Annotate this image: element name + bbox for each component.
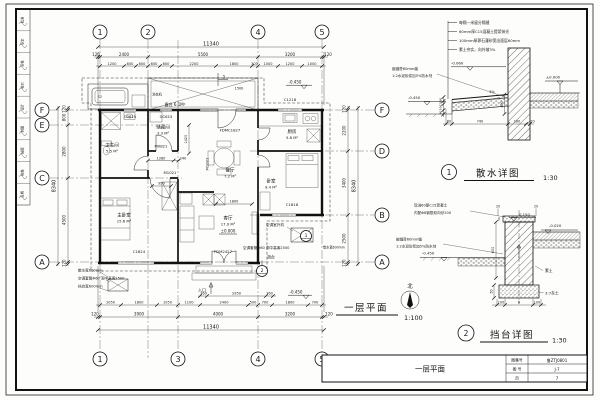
architectural-drawing: 批准审定审核校对设计制图描图校核日期 1245 1345 FECA FDBA 1… (0, 0, 600, 400)
level-mark: -0.450 (289, 80, 302, 85)
dim-left-seg: 120 (62, 105, 67, 113)
dim: 50 (497, 217, 501, 221)
grid-bubble-right: D (379, 147, 385, 156)
dim-top-minor: 1200 (286, 62, 295, 66)
detail-title: 挡台详图 (490, 329, 534, 341)
dim-top-minor: 2200 (190, 62, 199, 66)
detail-sanshui: 每隔一米留分隔缝60mm厚C15混凝土提浆抹光100mm厚卵石灌砂宽出面层60m… (392, 20, 580, 182)
dim-top-minor: 1200 (108, 62, 117, 66)
room-area: 17.0 M² (221, 222, 236, 227)
door-window-label: FDM2427 (214, 249, 233, 254)
dim-inner: 1500 (235, 87, 244, 91)
dim-top-minor: 1800 (230, 62, 239, 66)
grid-bubble-top: 5 (319, 28, 324, 37)
dim: 180 (514, 120, 520, 124)
detail-note: 100mm厚卵石灌砂宽出面层60mm (459, 38, 520, 43)
signature-cell-label: 校对 (20, 81, 25, 88)
dim-left-seg: 120 (62, 259, 67, 267)
grid-bubble-left: E (39, 121, 44, 130)
signature-cell-label: 日期 (20, 191, 25, 197)
dim: B (518, 301, 521, 305)
room-area: 3.3 M² (157, 131, 170, 136)
dim-left-seg: 4500 (62, 214, 67, 225)
terrace-label: 露台 6.1M² (165, 101, 186, 107)
grid-bubble-top: 1 (97, 28, 102, 37)
dim-bottom-minor: 700 (312, 301, 319, 305)
dim-inner: 1420 (184, 135, 188, 144)
dim-top-minor: 600 (139, 62, 146, 66)
window-label: C1824 (133, 249, 146, 254)
dim-inner: 1280 (157, 157, 166, 161)
dim-bottom-minor: 700 (262, 301, 269, 305)
plan-title: 一层平面 (344, 303, 388, 314)
room-name: 主卧室 (117, 212, 131, 219)
dim-bottom-minor: 500 (250, 301, 257, 305)
dim: 740 (477, 120, 483, 124)
grid-bubble-right: B (379, 211, 385, 220)
grid-bubble-left: F (40, 106, 45, 115)
grid-bubble-top: 2 (145, 28, 150, 37)
dim-bottom-major: 120 (325, 312, 333, 317)
detail-dangtai: 现浇60厚C15混凝土内配Φ6钢筋双向@200 2020 0.150 -0.02… (396, 203, 580, 345)
dim: 50 (490, 289, 494, 293)
grid-bubble-bottom: 4 (255, 355, 260, 364)
window-label: GC615 (160, 114, 173, 119)
dim-bottom-major: 120 (91, 312, 99, 317)
plan-note: 散水宽600mm (323, 245, 345, 250)
dim-left-seg: 2800 (62, 146, 67, 157)
dim-right-seg: 120 (342, 259, 347, 267)
grid-bubble-bottom: 1 (97, 355, 102, 364)
level-mark: -0.060 (451, 61, 464, 66)
detail-note: 每隔一米留分隔缝 (459, 20, 490, 25)
dim-top-major: 2400 (119, 52, 130, 57)
door-window-label: FDMC1827 (220, 127, 241, 132)
dim-top-minor: 600 (127, 62, 134, 66)
plan-note: 挡台 (267, 255, 275, 260)
window-label: C0615 (124, 114, 137, 119)
plan-note: 空调套管Φ60 洞中高离2500 (243, 245, 290, 250)
titleblock-atlas-no: 鲁ZTJ0801 (547, 357, 568, 363)
dim-bottom-minor: 1050 (163, 301, 172, 305)
dim: 40 (439, 111, 443, 115)
plan-room-labels: 卫生间 5.5 M² 储藏间 3.3 M² 厨房 5.8 M² 餐厅 7.2 M… (105, 92, 298, 227)
drawing-sheet: 批准审定审核校对设计制图描图校核日期 1245 1345 FECA FDBA 1… (0, 0, 600, 400)
detail-note: 60mm厚C15混凝土提浆抹光 (459, 29, 509, 34)
dim-bottom-minor: 1050 (106, 301, 115, 305)
dim-top-minor: 1000 (264, 62, 273, 66)
dim-left-seg: 800 (62, 113, 67, 121)
level-mark: -0.450 (422, 251, 435, 256)
level-mark: -0.450 (408, 95, 421, 100)
dim-bottom-total: 11340 (203, 325, 219, 331)
washer-label: 洗衣机 (152, 92, 162, 97)
signature-cell-label: 审定 (20, 38, 25, 45)
room-area: 15.6 M² (117, 219, 132, 224)
door-label: M1021 (205, 157, 210, 171)
room-area: 7.2 M² (224, 174, 237, 179)
dim-top-minor: 300 (251, 62, 258, 66)
door-label: M0821 (155, 144, 169, 149)
dim-top-minor: 600 (163, 62, 170, 66)
titleblock-page-no: 7 (556, 376, 559, 381)
layer-label: 3:7灰土 (545, 291, 559, 296)
dim-bottom-major: 4000 (213, 312, 224, 317)
entry-label: 入口 (198, 288, 206, 293)
dim-top-major: 3200 (285, 52, 296, 57)
window-label: C1818 (286, 202, 299, 207)
dim-right-seg: 2500 (342, 233, 347, 244)
dim-right-total: 8340 (352, 180, 358, 193)
detail-note: 内配Φ6钢筋双向@200 (414, 210, 452, 215)
detail-note: 1:2水泥砂浆加5%防水剂 (392, 73, 433, 78)
dim-top-major: 120 (324, 52, 332, 57)
plan-note: 挡台宽600mm (78, 283, 103, 288)
slope-label: 3% (489, 90, 495, 94)
dim: 20 (439, 101, 443, 105)
grid-bubble-left: A (39, 258, 45, 267)
grid-bubble-right: A (379, 258, 385, 267)
level-mark: ±0.000 (221, 229, 236, 234)
room-name: 卧室 (267, 178, 276, 185)
signature-cell-label: 设计 (20, 103, 25, 110)
dim-inner: 240 (180, 157, 186, 161)
signature-cell-label: 校核 (20, 169, 25, 176)
ac-outdoor-units (108, 228, 313, 291)
dim-top-major: 120 (92, 52, 100, 57)
dim-entry: 360 (266, 292, 273, 296)
titleblock-sheet-no: J-7 (553, 367, 559, 372)
dim: 400 (500, 101, 504, 107)
dim-bottom-minor: 1100 (185, 301, 194, 305)
titleblock-label: 页 (515, 376, 519, 381)
detail-number: 1 (447, 168, 452, 177)
room-name: 厨房 (288, 128, 297, 135)
dim-top-major: 5500 (198, 52, 209, 57)
dim-bottom-minor: 1800 (286, 301, 295, 305)
room-name: 客厅 (224, 215, 233, 222)
dim: 60 (439, 98, 443, 102)
detail-note: 嵌缝膏60mm缝 (396, 237, 422, 242)
north-compass: 北 (401, 282, 419, 309)
dim-right-seg: 120 (342, 105, 347, 113)
dim-right-seg: 3400 (342, 177, 347, 188)
dim-inner: 1800 (230, 200, 239, 204)
plan-scale: 1:100 (404, 314, 423, 322)
detail-note: 现浇60厚C15混凝土 (414, 203, 448, 208)
detail-number: 2 (464, 329, 469, 338)
detail-note: 嵌缝膏60mm缝 (392, 66, 418, 71)
dim: 20 (534, 204, 538, 208)
plan-title-group: 一层平面 1:100 北 (336, 282, 423, 322)
planter-sink-platform (88, 84, 148, 109)
level-mark: -0.020 (549, 223, 562, 228)
dim-left-total: 8340 (52, 180, 58, 193)
door-label: M1021 (164, 170, 178, 175)
dim-top-minor: 600 (151, 62, 158, 66)
level-mark: -0.450 (290, 290, 303, 295)
detail-scale: 1:30 (552, 337, 567, 345)
dim: 100 (534, 301, 540, 305)
grid-bubble-right: F (380, 106, 385, 115)
plan-note: 散水宽600mm (78, 267, 103, 272)
dim-bottom-minor: 2400 (220, 301, 229, 305)
window-label: C1218 (284, 97, 297, 102)
grid-bubble-bottom: 3 (175, 355, 180, 364)
dim-top-total: 11340 (203, 42, 219, 48)
section-mark: 1 (223, 75, 226, 81)
dim: 20 (496, 204, 500, 208)
titleblock-drawing-name: 一层平面 (415, 365, 445, 374)
room-name: 卫生间 (105, 142, 119, 149)
detail-note: 1:2水泥砂浆加5%防水剂 (396, 244, 437, 249)
dim-bottom-major: 3200 (285, 312, 296, 317)
dim: 60 (447, 120, 451, 124)
dim-bottom-major: 3900 (134, 312, 145, 317)
detail-ref-2: 2 (261, 268, 264, 274)
detail-title: 散水详图 (476, 168, 520, 180)
layer-label: 素土 (545, 268, 553, 273)
dim-bottom-minor: 1800 (135, 301, 144, 305)
north-label: 北 (407, 282, 413, 290)
room-area: 5.5 M² (106, 149, 119, 154)
grid-bubble-top: 4 (255, 28, 260, 37)
dining-table (208, 141, 240, 175)
grid-bubble-left: C (39, 174, 45, 183)
signature-cell-label: 描图 (20, 148, 25, 154)
signature-strip: 批准审定审核校对设计制图描图校核日期 (16, 9, 30, 205)
dim-right-seg: 2200 (342, 125, 347, 136)
dim-top-minor: 1000 (308, 62, 317, 66)
master-bed (100, 182, 177, 240)
detail-scale: 1:30 (543, 174, 558, 182)
dim: 100 (439, 105, 443, 111)
detail-ref-1: 1 (305, 233, 308, 239)
detail-note: 素土夯实，向外坡3% (459, 47, 496, 52)
level-mark: 0.150 (519, 212, 530, 217)
dim-entry: 2950 (232, 292, 241, 296)
plan-note: 空调套管Φ60 洞中高离2500 (78, 275, 125, 280)
plan-note: 空调室外机 (266, 222, 284, 227)
dim: 20 (530, 120, 534, 124)
signature-cell-label: 批准 (20, 16, 25, 23)
room-name: 餐厅 (226, 167, 235, 174)
signature-cell-label: 制图 (20, 126, 25, 132)
title-block: 一层平面 图集号 鲁ZTJ0801 图 号 J-7 页 7 (322, 355, 587, 382)
dim: 100 (498, 301, 504, 305)
dim: 600 (491, 247, 495, 253)
living-room-furniture (180, 193, 257, 242)
level-mark: ±0.000 (546, 75, 561, 80)
titleblock-label: 图 号 (513, 367, 522, 372)
room-area: 5.8 M² (286, 135, 299, 140)
room-area: 9.4 M² (265, 185, 278, 190)
room-name: 储藏间 (156, 124, 170, 131)
signature-cell-label: 审核 (20, 60, 25, 67)
titleblock-label: 图集号 (511, 358, 523, 363)
